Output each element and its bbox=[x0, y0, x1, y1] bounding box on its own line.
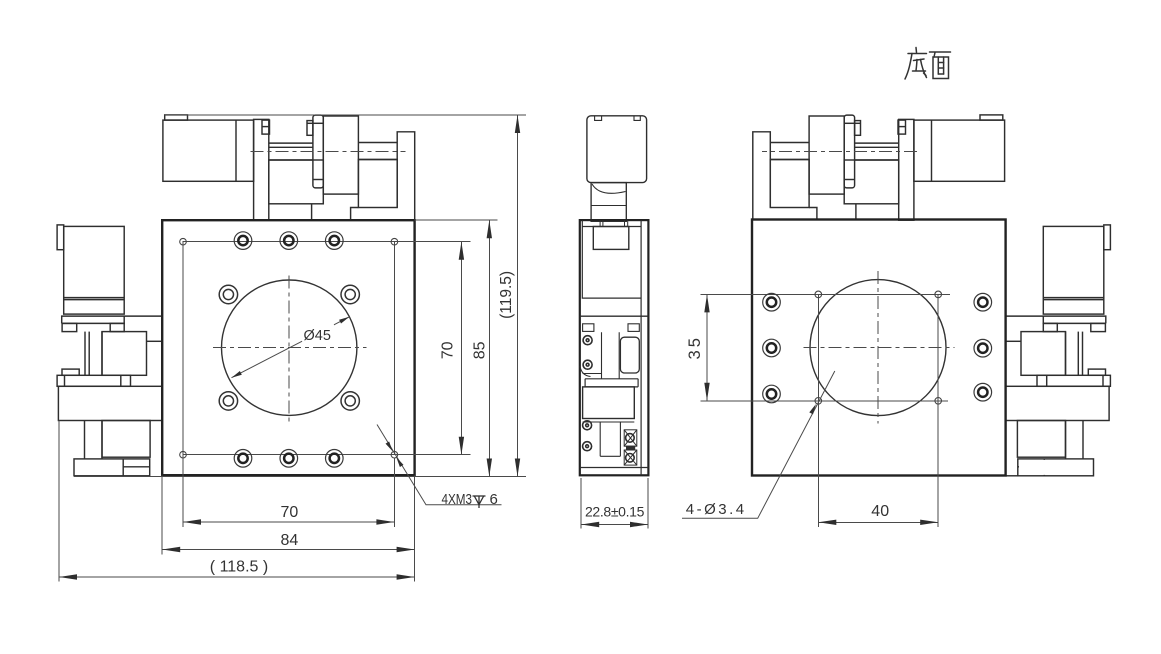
svg-text:(119.5): (119.5) bbox=[498, 271, 515, 319]
svg-text:84: 84 bbox=[281, 532, 299, 549]
svg-text:4-Ø3.4: 4-Ø3.4 bbox=[686, 501, 747, 518]
svg-text:4XM3: 4XM3 bbox=[442, 490, 473, 507]
svg-text:6: 6 bbox=[490, 491, 498, 508]
svg-text:70: 70 bbox=[439, 341, 456, 359]
svg-text:40: 40 bbox=[871, 503, 889, 520]
svg-text:70: 70 bbox=[281, 504, 299, 521]
svg-text:35: 35 bbox=[686, 335, 704, 359]
svg-text:Ø45: Ø45 bbox=[304, 328, 331, 344]
svg-text:22.8±0.15: 22.8±0.15 bbox=[585, 504, 645, 520]
svg-text:85: 85 bbox=[471, 341, 488, 359]
svg-text:( 118.5 ): ( 118.5 ) bbox=[210, 559, 268, 576]
